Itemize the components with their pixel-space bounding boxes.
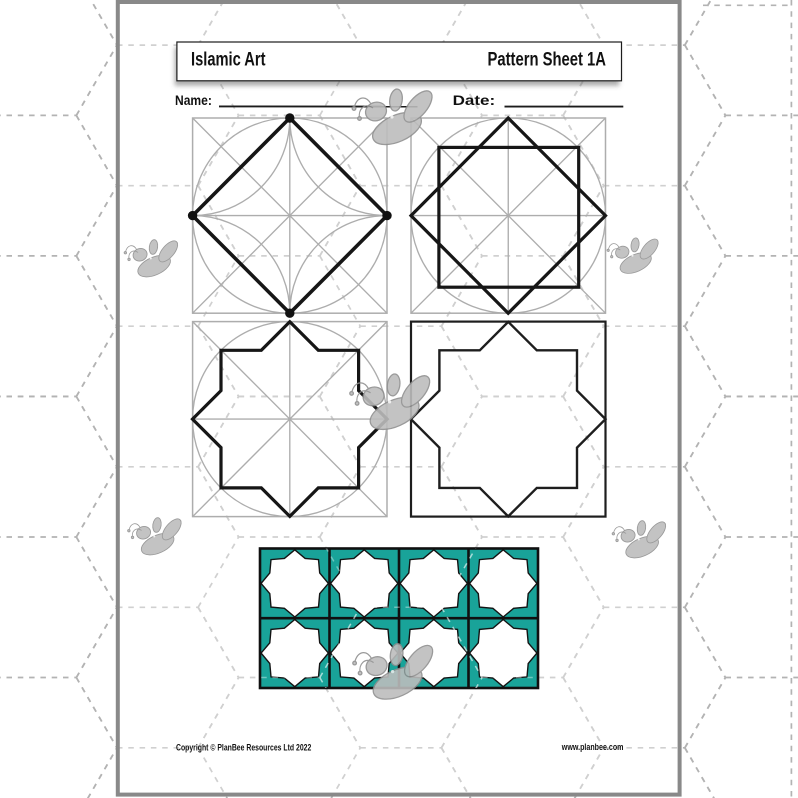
svg-text:Copyright © PlanBee Resources: Copyright © PlanBee Resources Ltd 2022 xyxy=(176,743,311,753)
svg-text:Date:: Date: xyxy=(453,92,496,108)
svg-text:Islamic Art: Islamic Art xyxy=(191,49,266,71)
svg-text:www.planbee.com: www.planbee.com xyxy=(561,742,623,752)
svg-text:Pattern Sheet 1A: Pattern Sheet 1A xyxy=(488,49,607,71)
svg-text:Name:: Name: xyxy=(175,92,212,108)
